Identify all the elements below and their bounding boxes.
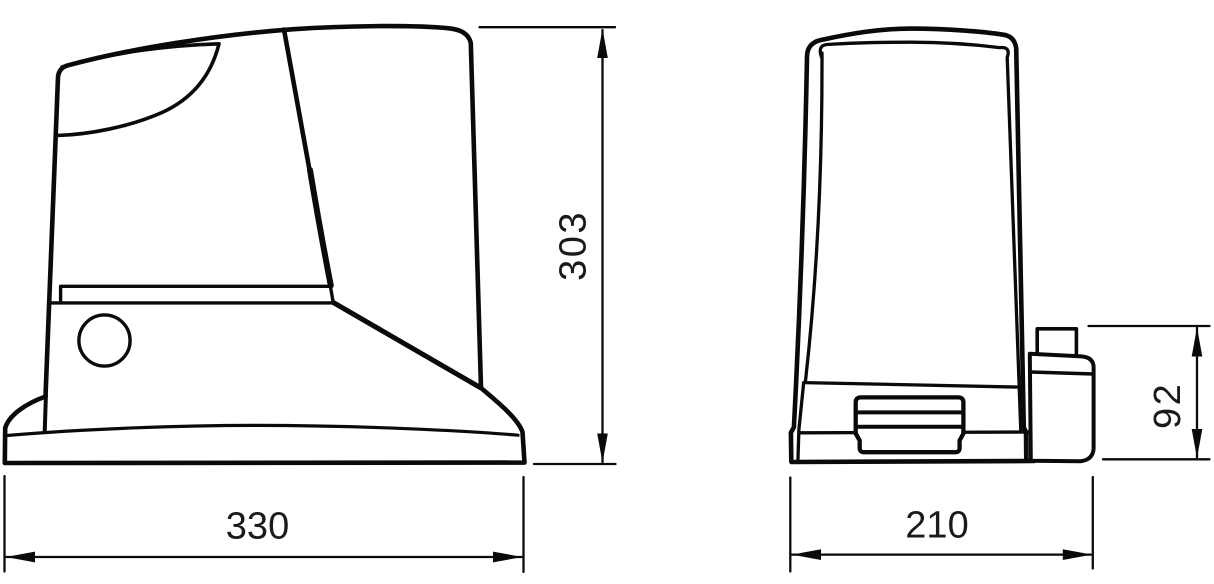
svg-text:210: 210: [905, 505, 968, 547]
svg-text:92: 92: [1147, 382, 1189, 429]
svg-text:303: 303: [553, 210, 595, 281]
svg-text:330: 330: [226, 506, 289, 548]
